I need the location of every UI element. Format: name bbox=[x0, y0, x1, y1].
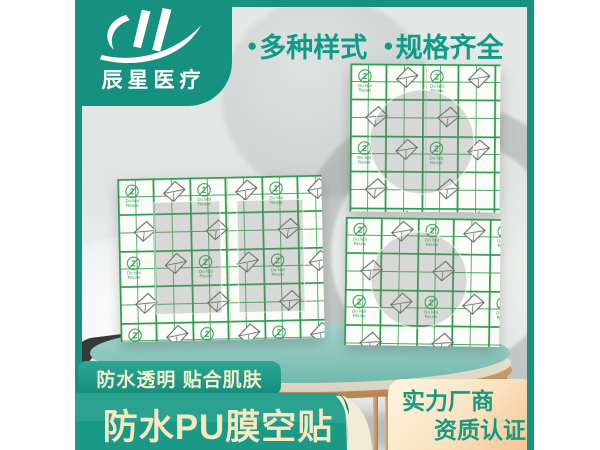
pu-film-sheet-large bbox=[117, 175, 324, 342]
pu-film-patch bbox=[237, 199, 305, 312]
brand-logo-block: 辰星医疗 bbox=[75, 0, 232, 106]
cert-line-1: 实力厂商 bbox=[388, 387, 527, 416]
feature-badge: 防水透明 贴合肌肤 bbox=[78, 361, 281, 396]
pu-film-patch bbox=[370, 90, 475, 195]
bullet-item: ● 规格齐全 bbox=[383, 26, 503, 65]
bullet-icon: ● bbox=[247, 32, 257, 59]
product-title: 防水PU膜空贴 bbox=[92, 399, 344, 450]
bullet-label: 多种样式 bbox=[259, 26, 367, 65]
pu-film-sheet-round-bottom bbox=[344, 217, 501, 347]
cert-line-2: 资质认证 bbox=[388, 416, 527, 445]
bullet-label: 规格齐全 bbox=[396, 26, 504, 65]
bullet-item: ● 多种样式 bbox=[247, 26, 367, 65]
pu-film-patch bbox=[370, 231, 467, 328]
certification-box: 实力厂商 资质认证 bbox=[388, 379, 527, 450]
bullet-icon: ● bbox=[383, 32, 393, 59]
pu-film-sheet-round-top bbox=[349, 63, 500, 212]
brand-name: 辰星医疗 bbox=[75, 64, 232, 94]
pu-film-patch bbox=[154, 201, 222, 314]
product-banner: 2 Do Not Reuse bbox=[0, 0, 600, 450]
brand-logo-icon bbox=[93, 4, 215, 66]
feature-bullets: ● 多种样式 ● 规格齐全 bbox=[247, 26, 504, 65]
